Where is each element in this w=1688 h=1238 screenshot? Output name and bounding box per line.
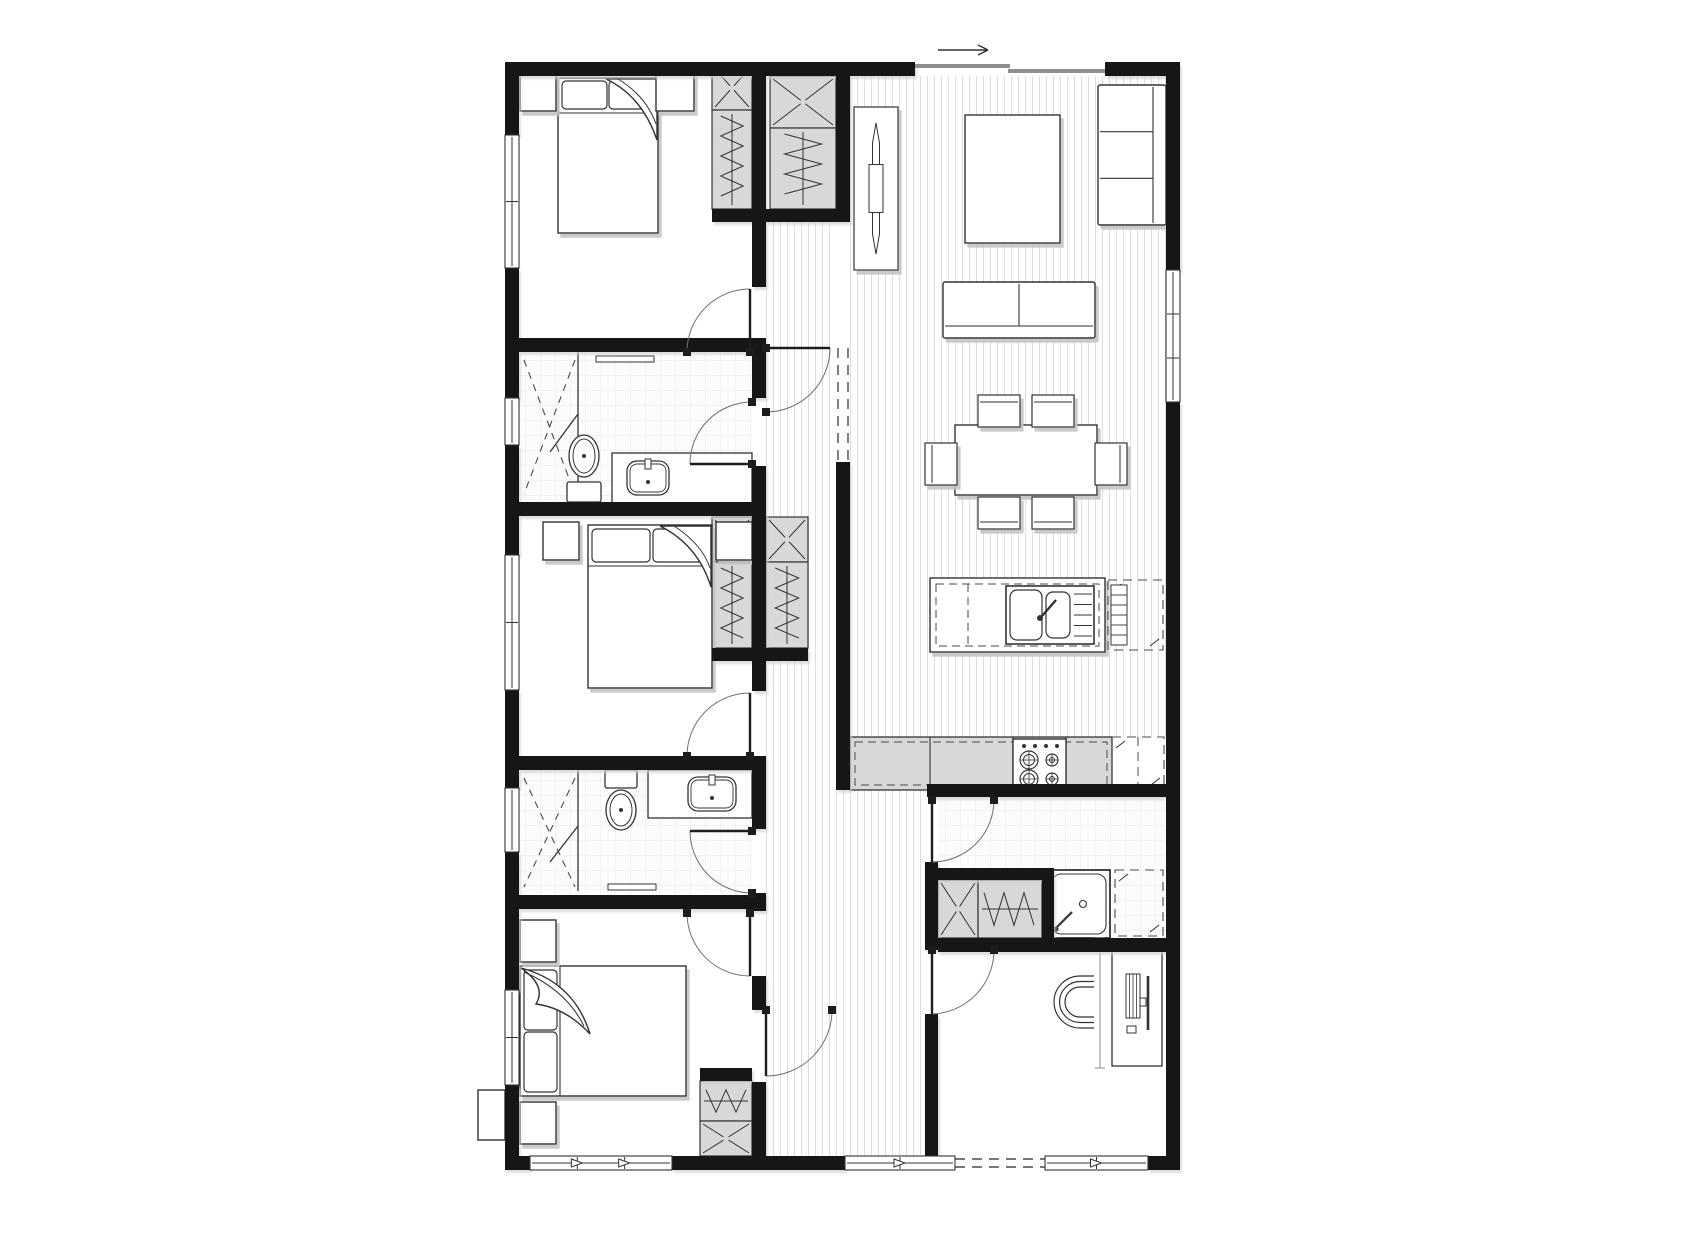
bedside-3-top [520,920,556,962]
wall-exterior-left-6 [505,1085,519,1170]
bed-1 [558,78,658,233]
door-study [928,946,998,1014]
bedside-1-left [520,73,556,111]
window-bedroom-3-south [530,1156,672,1170]
hall-cupboard-hanging [770,128,836,209]
dining-table [955,425,1097,495]
entry-direction-arrow [938,45,988,55]
floor-plan-page [0,0,1688,1238]
wall-under-bench [927,784,1166,797]
dining-chair-5 [925,443,957,485]
window-hall-south [845,1156,955,1170]
living-rug [965,115,1060,243]
wall-laundry-west-1 [925,862,938,950]
laundry-linen-hanging [978,880,1042,938]
wall-exterior-right-upper [1166,62,1180,270]
wall-exterior-left-1 [505,62,519,135]
wall-closet-cap-north [712,209,850,222]
bed-2 [588,525,712,688]
bedside-2-right [716,522,752,560]
window-bedroom-1 [505,135,519,268]
wall-robe2-cap [712,648,808,661]
wall-exterior-left-2 [505,268,519,398]
wall-exterior-left-4 [505,690,519,788]
hall-linen-shelf [766,517,808,562]
laundry-linen-shelf [938,880,978,938]
fridge-space [1112,737,1164,789]
toilet-1 [567,435,601,502]
window-bedroom-3 [505,990,519,1085]
hall-linen-hanging [766,562,808,648]
wall-bath1-bed2 [519,502,752,516]
wall-exterior-bottom-2 [672,1156,845,1170]
window-bathroom-1 [505,398,519,445]
towel-rail-1 [596,356,654,362]
kitchen-bench [850,737,1112,790]
external-step [478,1090,505,1140]
wall-hall-west-7 [752,976,766,1010]
window-bathroom-2 [505,788,519,852]
wall-hall-west-1 [752,62,766,287]
wall-exterior-bottom-3 [1148,1156,1180,1170]
sofa-two-seat [943,282,1095,338]
window-living [1166,270,1180,402]
study-chair [1054,976,1094,1028]
wall-hall-west-8 [752,1082,766,1156]
floor-hallway-south [836,790,925,1156]
towel-rail-2 [608,884,656,890]
wall-hall-west-5 [752,756,766,829]
wall-bed2-bath2 [519,756,752,770]
dining-chair-3 [978,497,1020,529]
wall-linen-cap [938,868,1042,880]
floor-hallway [766,209,836,1156]
tv-unit [854,107,898,270]
wall-linen-divider [1042,868,1054,938]
opening-hall-living [838,348,848,460]
wall-laundry-study [938,938,1166,952]
hall-cupboard-shelf [770,76,836,128]
opening-south-wall [955,1159,1045,1167]
bedside-1-right [656,73,694,111]
wall-exterior-left-5 [505,852,519,990]
dining-chair-2 [1032,395,1074,427]
laundry-tub [1048,870,1110,938]
floor-plan [0,0,1688,1238]
wall-laundry-west-2 [925,1014,938,1156]
wall-bath2-bed3 [519,895,752,909]
bedside-2-left [543,522,579,560]
vanity-2 [648,770,752,818]
robe-bedroom-1-hanging [712,110,752,209]
window-bedroom-2 [505,555,519,690]
wall-robe3-cap [700,1068,752,1081]
wall-exterior-right-lower [1166,402,1180,1170]
robe-bedroom-2-hanging [712,562,752,648]
bedside-3-bottom [520,1102,556,1144]
sofa-three-seat [1098,85,1166,225]
kitchen-sink [1006,586,1094,644]
wall-bed1-bath1 [519,338,752,352]
window-study-south [1045,1156,1148,1170]
bed-3 [520,966,686,1096]
door-bedroom-3 [683,909,754,976]
study-desk [1112,940,1162,1066]
layer-entry [915,45,1105,73]
door-bedroom-2 [683,693,754,760]
vanity-1 [612,453,752,503]
dining-chair-1 [978,395,1020,427]
toilet-2 [605,770,637,830]
wall-hall-east-upper [836,62,850,209]
wall-hall-west-3 [752,352,766,398]
entry-sliding-door [915,64,1105,73]
desk-dimension-line [1095,938,1105,1068]
wall-exterior-left-3 [505,445,519,555]
wall-hall-east-lower [836,462,850,790]
dining-chair-6 [1095,443,1127,485]
robe-bedroom-3-shelf [700,1121,752,1156]
robe-bedroom-3-hanging [700,1081,752,1121]
dining-chair-4 [1032,497,1074,529]
wall-exterior-top-left [505,62,915,76]
cooktop [1013,739,1066,788]
